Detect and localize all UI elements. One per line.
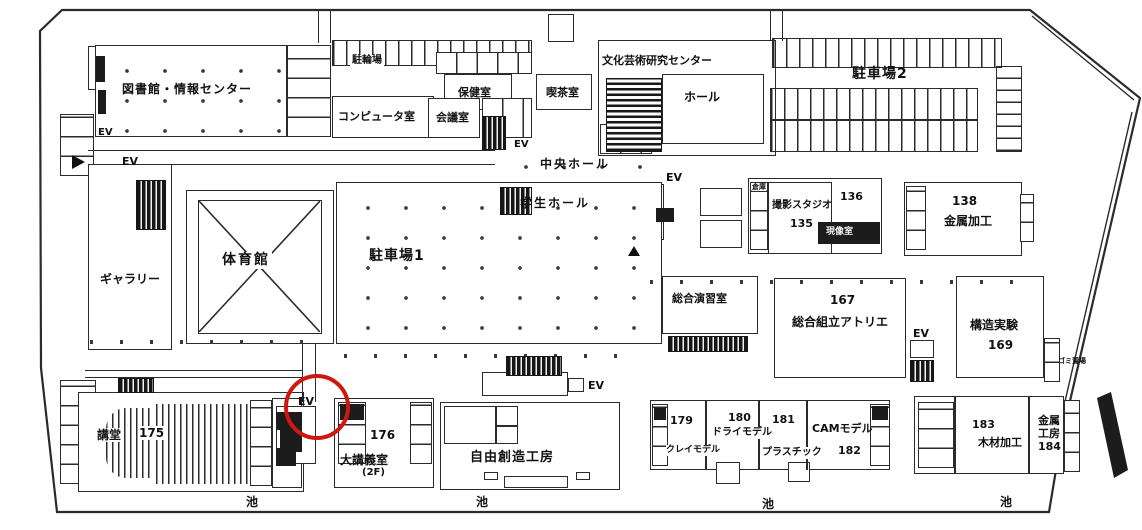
room180-label: 180 — [728, 411, 751, 424]
room-cells — [906, 186, 926, 250]
room-small — [700, 188, 742, 216]
health-room-label: 保健室 — [458, 86, 491, 99]
bike-parking-label: 駐輪場 — [350, 55, 384, 67]
parking1-label: 駐車場1 — [366, 248, 428, 265]
structure-lab-label: 構造実験 — [970, 318, 1018, 332]
storage-label: 倉庫 — [752, 183, 766, 191]
room175-label: 175 — [138, 426, 165, 440]
ev-label: EV — [913, 327, 929, 340]
parking2-label: 駐車場2 — [852, 66, 908, 83]
workshop-label: 自由創造工房 — [470, 450, 554, 466]
auditorium-seats — [106, 408, 150, 478]
ev-label: EV — [122, 155, 138, 168]
corridor-walkway — [88, 150, 495, 165]
pond-label: 池 — [476, 495, 488, 509]
atelier-label: 総合組立アトリエ — [792, 315, 888, 329]
darkroom-label: 現像室 — [826, 227, 853, 238]
room-hall — [662, 74, 764, 144]
dry-model-label: ドライモデル — [712, 427, 772, 439]
room169-label: 169 — [988, 338, 1013, 352]
corridor-walkway — [85, 370, 303, 378]
room183-label: 183 — [972, 418, 995, 431]
wall — [1028, 396, 1030, 474]
north-arrow-icon — [628, 246, 640, 256]
shaft-block — [98, 90, 106, 114]
stair-block — [96, 56, 105, 82]
room-cells — [918, 402, 954, 468]
wall — [705, 400, 707, 470]
metal-workshop-label: 金属 工房 184 — [1038, 414, 1061, 454]
auditorium-label: 講堂 — [96, 428, 122, 442]
stair-block — [506, 356, 562, 376]
room167-label: 167 — [830, 293, 855, 307]
meeting-room-label: 会議室 — [436, 111, 469, 124]
seminar-room-label: 総合演習室 — [672, 292, 727, 305]
shaft-block — [654, 408, 666, 420]
gym-label: 体育館 — [220, 252, 272, 269]
room179-label: 179 — [670, 414, 693, 427]
room-cells — [750, 182, 768, 250]
plastic-label: プラスチック — [762, 447, 822, 459]
workbench — [484, 472, 498, 480]
room-cells — [1020, 194, 1034, 242]
ev-label: EV — [514, 139, 529, 151]
room-small — [496, 406, 518, 426]
library-annex-rooms — [287, 45, 331, 137]
small-rooms-row — [436, 52, 532, 74]
entrance-arrow-icon — [72, 155, 85, 169]
corridor-top-connector — [318, 10, 331, 43]
top-kiosk — [548, 14, 574, 42]
room-small — [700, 220, 742, 248]
culture-center-label: 文化芸術研究センター — [602, 54, 712, 67]
trash-area-label: ゴミ置場 — [1058, 357, 1086, 365]
room135-label: 135 — [790, 217, 813, 230]
cam-model-label: CAMモデル — [812, 422, 873, 435]
workbench — [576, 472, 590, 480]
pond-label: 池 — [762, 497, 774, 511]
auditorium-seats — [156, 404, 248, 484]
central-hall-label: 中央ホール — [540, 157, 610, 171]
library-label: 図書館・情報センター — [122, 82, 252, 96]
stage-cells — [250, 400, 272, 486]
lecture-room-label: 大講義室 — [340, 453, 388, 467]
gallery-label: ギャラリー — [100, 272, 160, 286]
ev-label: EV — [98, 127, 113, 139]
parking2-stalls-top — [772, 38, 1002, 68]
room-annex — [716, 462, 740, 484]
room136-label: 136 — [840, 190, 863, 203]
cafe-label: 喫茶室 — [546, 86, 579, 99]
slope-shading — [1097, 392, 1128, 478]
wall — [806, 400, 808, 470]
column-row — [650, 280, 1040, 284]
lecture-room-floor-label: (2F) — [362, 467, 385, 479]
student-hall-label: 学生ホール — [520, 196, 590, 210]
column-row — [344, 354, 644, 358]
column-row — [90, 340, 330, 344]
floor-plan: EV EV 図書館・情報センター 駐輪場 コンピュータ室 保健室 会議室 喫茶室… — [0, 0, 1142, 530]
wall — [954, 396, 956, 474]
stair-block — [118, 378, 154, 393]
ev-shaft — [568, 378, 584, 392]
stair-block — [668, 336, 748, 352]
stair-block — [910, 360, 934, 382]
wood-processing-label: 木材加工 — [978, 436, 1022, 449]
stair-block — [136, 180, 166, 230]
stair-block — [482, 116, 506, 150]
room-cells — [1064, 400, 1080, 472]
photo-studio-label: 撮影スタジオ — [772, 200, 832, 212]
computer-room-label: コンピュータ室 — [338, 110, 415, 123]
room-small — [496, 426, 518, 444]
ev-shaft — [910, 340, 934, 358]
pond-label: 池 — [246, 495, 258, 509]
workbench — [504, 476, 568, 488]
hall-label: ホール — [684, 90, 720, 104]
pond-label: 池 — [1000, 495, 1012, 509]
theater-seating-block — [606, 78, 662, 152]
room181-label: 181 — [772, 413, 795, 426]
shaft-block — [656, 208, 674, 222]
room138-label: 138 — [952, 194, 977, 208]
clay-model-label: クレイモデル — [666, 445, 720, 456]
room-cells — [410, 402, 432, 464]
room-small — [444, 406, 496, 444]
highlight-circle — [284, 374, 350, 440]
metal-processing-label: 金属加工 — [944, 214, 992, 228]
room176-label: 176 — [370, 428, 395, 442]
ev-label: EV — [588, 379, 604, 392]
corridor-top-connector — [770, 10, 783, 41]
ev-label: EV — [666, 171, 682, 184]
room182-label: 182 — [838, 444, 861, 457]
parking2-stalls-double — [770, 88, 978, 152]
shaft-block — [872, 406, 888, 420]
parking2-stalls-side — [996, 66, 1022, 152]
